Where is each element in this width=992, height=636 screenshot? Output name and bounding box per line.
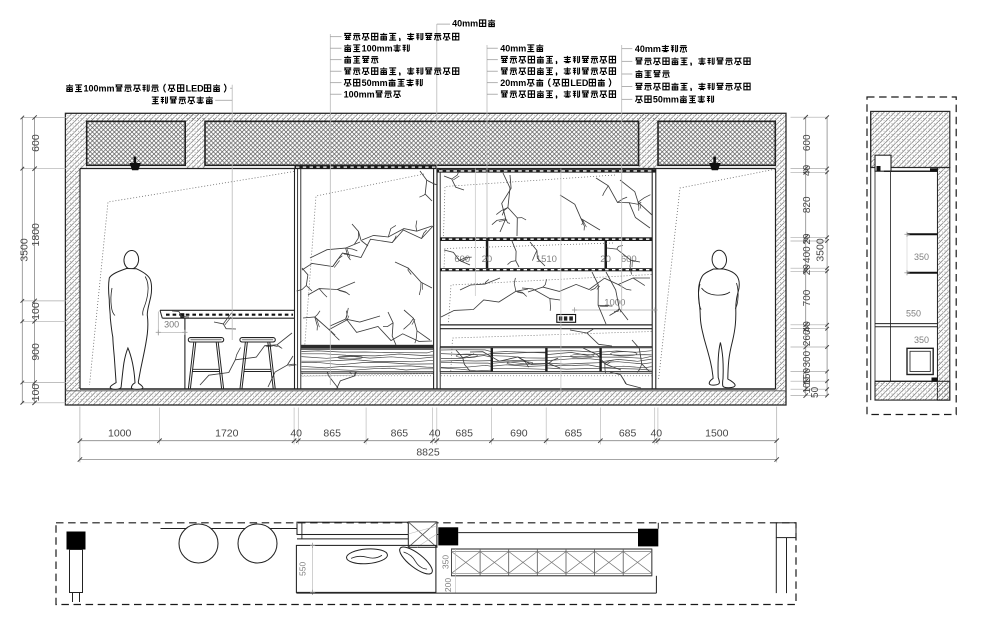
svg-text:40mm: 40mm <box>452 18 478 28</box>
svg-text:50mm: 50mm <box>362 78 388 88</box>
svg-text:1500: 1500 <box>705 428 729 440</box>
svg-text:900: 900 <box>30 343 42 361</box>
svg-text:40mm: 40mm <box>635 44 661 54</box>
svg-text:260: 260 <box>802 329 813 346</box>
svg-text:20mm: 20mm <box>500 78 526 88</box>
svg-text:300: 300 <box>802 350 813 367</box>
svg-text:100: 100 <box>30 384 42 402</box>
svg-text:1720: 1720 <box>215 428 239 440</box>
svg-text:20: 20 <box>482 254 493 265</box>
svg-text:865: 865 <box>391 428 409 440</box>
svg-text:1000: 1000 <box>108 428 132 440</box>
svg-text:100: 100 <box>30 302 42 320</box>
svg-text:40: 40 <box>650 428 662 440</box>
svg-text:300: 300 <box>164 320 179 330</box>
svg-text:600: 600 <box>621 254 637 265</box>
svg-text:350: 350 <box>914 335 929 345</box>
svg-text:550: 550 <box>298 562 308 576</box>
svg-text:400: 400 <box>802 246 813 263</box>
svg-text:40mm: 40mm <box>500 43 526 53</box>
svg-text:600: 600 <box>454 254 470 265</box>
svg-text:600: 600 <box>802 134 813 151</box>
svg-text:20: 20 <box>802 264 813 276</box>
svg-text:1800: 1800 <box>30 223 42 247</box>
svg-text:550: 550 <box>906 309 921 319</box>
svg-text:865: 865 <box>323 428 341 440</box>
svg-text:820: 820 <box>802 196 813 213</box>
svg-text:685: 685 <box>619 428 637 440</box>
svg-text:40: 40 <box>429 428 441 440</box>
svg-text:50mm: 50mm <box>653 94 679 104</box>
svg-text:100mm: 100mm <box>84 83 115 93</box>
svg-text:685: 685 <box>565 428 583 440</box>
svg-text:50: 50 <box>810 386 821 398</box>
svg-text:LED: LED <box>570 78 589 88</box>
svg-text:350: 350 <box>914 252 929 262</box>
svg-text:350: 350 <box>441 555 451 569</box>
svg-text:40: 40 <box>802 164 813 176</box>
svg-text:685: 685 <box>455 428 473 440</box>
svg-text:3500: 3500 <box>814 238 826 262</box>
svg-text:8825: 8825 <box>416 447 440 459</box>
svg-text:700: 700 <box>802 289 813 306</box>
svg-text:600: 600 <box>30 134 42 152</box>
svg-text:690: 690 <box>510 428 528 440</box>
svg-text:100mm: 100mm <box>344 89 375 99</box>
svg-text:40: 40 <box>290 428 302 440</box>
svg-text:20: 20 <box>802 233 813 245</box>
svg-text:LED: LED <box>186 83 205 93</box>
svg-text:200: 200 <box>443 578 453 592</box>
svg-text:3500: 3500 <box>18 238 30 262</box>
svg-text:20: 20 <box>600 254 611 265</box>
svg-text:100mm: 100mm <box>362 43 393 53</box>
